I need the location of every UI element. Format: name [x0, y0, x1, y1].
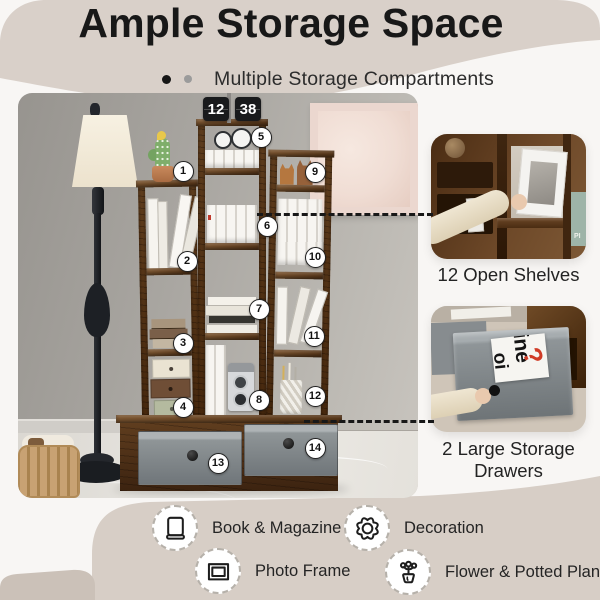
alarm-clock	[231, 128, 252, 149]
legend-label: Decoration	[404, 519, 484, 538]
book-flat	[209, 316, 255, 323]
terracotta-pot	[152, 166, 174, 182]
cubby-white-books	[207, 205, 257, 243]
photo-frame-icon	[205, 558, 232, 585]
wood-shelf	[274, 350, 322, 358]
cat-figurine	[280, 164, 294, 185]
page-title: Ample Storage Space	[0, 0, 591, 47]
flip-clock-minutes: 38	[235, 97, 261, 121]
shelf-marker-8: 8	[249, 390, 270, 411]
cactus-flower	[157, 131, 166, 140]
lamp-ornament	[84, 283, 110, 337]
wood-shelf	[205, 168, 259, 175]
legend-label: Photo Frame	[255, 562, 350, 581]
decoration-icon	[354, 515, 381, 542]
callout-open-shelves: PI	[431, 134, 586, 259]
bullet-dot-dark	[162, 75, 171, 84]
product-infographic: Ample Storage Space Multiple Storage Com…	[0, 0, 600, 600]
book-logo-chip	[208, 215, 211, 220]
book-flat	[151, 319, 185, 330]
cactus	[155, 138, 170, 168]
wood-panel	[321, 157, 333, 420]
wood-shelf	[205, 243, 259, 250]
wood-panel	[198, 126, 205, 420]
lamp-pole	[94, 213, 101, 463]
legend-circle	[385, 549, 431, 595]
book-row	[205, 150, 259, 168]
callout-open-shelves-label: 12 Open Shelves	[421, 264, 596, 286]
legend-item-flower-plant: Flower & Potted Plant	[385, 549, 600, 595]
shelf-middle-column	[198, 119, 266, 420]
bullet-dot-gray	[184, 75, 192, 83]
drawer-knob	[283, 438, 294, 449]
wood-panel	[266, 156, 278, 419]
pen-cup	[280, 380, 303, 414]
lamp-finial	[90, 103, 100, 117]
lamp-neck	[92, 187, 104, 215]
main-product-photo: 12 38	[18, 93, 418, 498]
shelf-marker-4: 4	[173, 397, 194, 418]
magazine: ine oi ?	[491, 333, 549, 382]
shelf-marker-6: 6	[257, 216, 278, 237]
globe-decor	[445, 138, 465, 158]
wood-shelf	[205, 333, 259, 340]
book	[157, 201, 168, 270]
magazine-text: oi	[491, 352, 512, 371]
shelf-marker-5: 5	[251, 127, 272, 148]
page-subtitle: Multiple Storage Compartments	[214, 68, 494, 91]
legend-circle	[195, 548, 241, 594]
camera-lens	[233, 375, 248, 390]
callout-connector-line-top	[257, 213, 433, 216]
lamp-shade	[72, 115, 138, 187]
shelf-marker-11: 11	[304, 326, 325, 347]
wicker-basket	[18, 445, 80, 498]
drawer-knob	[489, 385, 500, 396]
legend-item-photo-frame: Photo Frame	[195, 548, 350, 594]
camera-lens	[233, 392, 248, 407]
legend-label: Flower & Potted Plant	[445, 563, 600, 582]
dark-cubby	[437, 162, 493, 188]
shelf-marker-12: 12	[305, 386, 326, 407]
shelf-marker-3: 3	[173, 333, 194, 354]
callout-storage-drawers-label: 2 Large Storage Drawers	[421, 438, 596, 481]
legend-circle	[152, 505, 198, 551]
wood-shelf	[277, 185, 325, 193]
clock-minutes-text: 38	[240, 101, 257, 118]
shelf-right-column	[266, 149, 333, 420]
book-icon	[162, 515, 189, 542]
shelf-marker-1: 1	[173, 161, 194, 182]
callout-connector-line-bottom	[304, 420, 434, 423]
shelf-marker-13: 13	[208, 453, 229, 474]
subtitle-row: Multiple Storage Compartments	[162, 66, 494, 92]
book-spine-text: PI	[574, 233, 581, 240]
mini-drawer-knob	[169, 367, 173, 371]
callout-storage-drawers: ine oi ?	[431, 306, 586, 432]
shelf-marker-7: 7	[249, 299, 270, 320]
legend-item-decoration: Decoration	[344, 505, 484, 551]
cactus-arm	[148, 149, 156, 161]
wood-top-slab	[268, 149, 334, 157]
clock-hours-text: 12	[208, 101, 225, 118]
plant-icon	[395, 559, 422, 586]
book-cover-photo	[527, 161, 558, 205]
person-hand	[511, 194, 527, 210]
camera-top	[228, 363, 254, 372]
mini-drawer-knob	[169, 387, 173, 391]
teal-book-spine: PI	[571, 192, 586, 246]
wood-shelf	[275, 272, 323, 280]
legend-circle	[344, 505, 390, 551]
wood-panel	[259, 126, 266, 420]
book	[276, 287, 288, 345]
shelf-left-column	[138, 180, 200, 421]
cubby-white-books	[206, 345, 226, 420]
shelf-marker-2: 2	[177, 251, 198, 272]
flip-clock-hours: 12	[203, 97, 229, 121]
shelf-marker-14: 14	[305, 438, 326, 459]
drawer-knob	[187, 450, 198, 461]
shelf-marker-9: 9	[305, 162, 326, 183]
shelf-marker-10: 10	[305, 247, 326, 268]
alarm-clock	[214, 131, 232, 149]
legend-item-book-magazine: Book & Magazine	[152, 505, 341, 551]
legend-label: Book & Magazine	[212, 519, 341, 538]
